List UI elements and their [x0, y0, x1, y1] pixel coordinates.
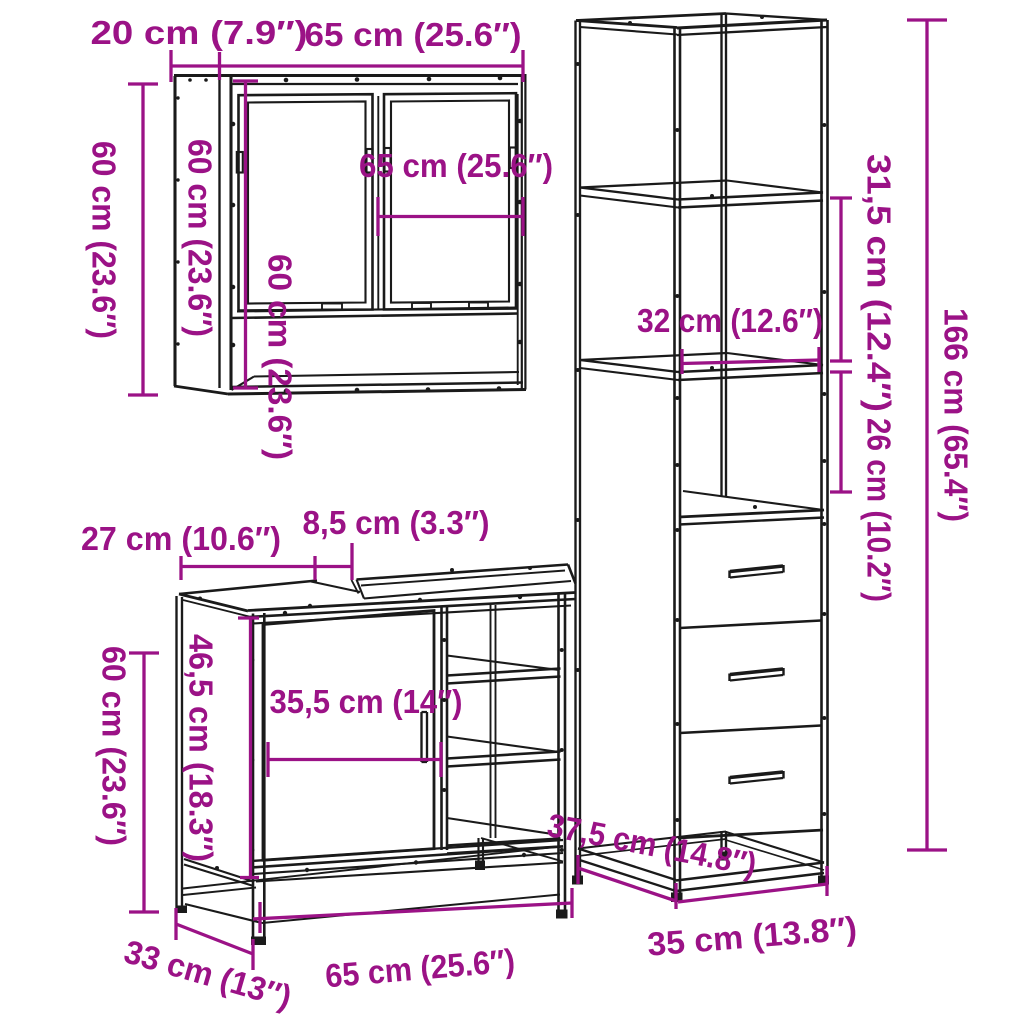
svg-text:65 cm (25.6″): 65 cm (25.6″)	[359, 147, 553, 184]
svg-text:26 cm (10.2″): 26 cm (10.2″)	[861, 418, 898, 602]
svg-text:8,5 cm (3.3″): 8,5 cm (3.3″)	[303, 504, 490, 541]
svg-text:31,5 cm (12.4″): 31,5 cm (12.4″)	[861, 154, 898, 412]
svg-text:27 cm (10.6″): 27 cm (10.6″)	[81, 520, 281, 557]
svg-text:20 cm (7.9″): 20 cm (7.9″)	[91, 14, 308, 51]
svg-text:33 cm (13″): 33 cm (13″)	[120, 933, 296, 1016]
svg-text:35 cm (13.8″): 35 cm (13.8″)	[646, 909, 858, 962]
svg-text:46,5 cm (18.3″): 46,5 cm (18.3″)	[183, 634, 220, 862]
svg-text:60 cm (23.6″): 60 cm (23.6″)	[182, 139, 219, 337]
svg-text:166 cm (65.4″): 166 cm (65.4″)	[938, 308, 975, 522]
svg-text:60 cm (23.6″): 60 cm (23.6″)	[86, 141, 123, 339]
svg-text:65 cm (25.6″): 65 cm (25.6″)	[305, 16, 522, 53]
svg-text:60 cm (23.6″): 60 cm (23.6″)	[96, 646, 133, 846]
svg-text:35,5 cm (14″): 35,5 cm (14″)	[270, 683, 463, 720]
svg-text:60 cm (23.6″): 60 cm (23.6″)	[262, 254, 299, 460]
svg-text:32 cm (12.6″): 32 cm (12.6″)	[637, 302, 823, 339]
svg-text:65 cm (25.6″): 65 cm (25.6″)	[324, 942, 516, 995]
